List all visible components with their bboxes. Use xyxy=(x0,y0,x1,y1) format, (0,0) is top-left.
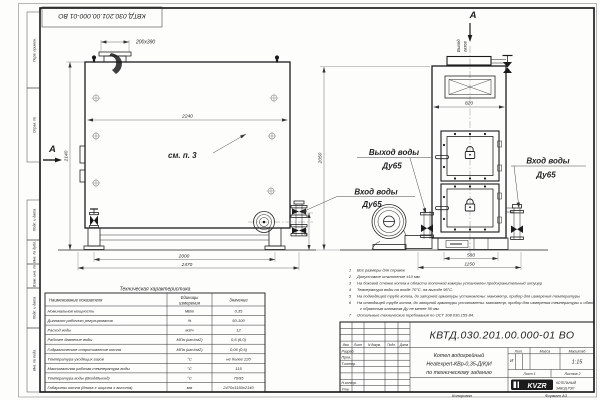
dim-height-2050: 2050 xyxy=(318,152,324,164)
row-unit: м3/ч xyxy=(185,328,193,333)
row-name: Диапазон рабочего регулирования xyxy=(47,318,114,323)
margin-label-0: Перв. примен. xyxy=(33,38,37,62)
tech-table-title: Техническая характеристика xyxy=(120,287,191,293)
upper-door xyxy=(436,131,502,181)
row-value: 0,6 (6,0) xyxy=(231,337,247,342)
note-num: 7 xyxy=(349,313,352,318)
note-num: 4 xyxy=(349,287,352,292)
row-value: 0,06 (0,6) xyxy=(230,347,248,352)
base-frame xyxy=(438,238,508,250)
row-unit: мм xyxy=(187,385,193,390)
tech-col3-header: Значение xyxy=(229,298,248,303)
drawing-canvas: Копировал Формат А3 Перв. примен. Справ.… xyxy=(0,0,600,400)
dim-width-820: 820 xyxy=(465,101,473,107)
role-razrab: Разраб. xyxy=(342,349,355,353)
row-value: 50-100 xyxy=(232,318,245,323)
row-name: Габариты котла (длина х ширина х высота) xyxy=(48,385,134,390)
row-value: не более 220 xyxy=(226,356,251,361)
row-unit: °С xyxy=(187,356,192,361)
vent-valve-icon xyxy=(503,56,513,74)
table-row: Рабочее давление воды МПа (кгс/см2) 0,6 … xyxy=(48,337,247,342)
dim-stub: 200х390 xyxy=(135,40,155,46)
row-value: 70/95 xyxy=(233,375,244,380)
role-utv: Утв. xyxy=(342,387,350,391)
dim-length-2470: 2470 xyxy=(181,262,193,268)
role-prov: Пров. xyxy=(342,356,351,360)
note-num: 2 xyxy=(348,274,352,279)
front-inlet-label: Вход воды Ду65 xyxy=(511,157,586,209)
side-inlet-label: Вход воды Ду65 xyxy=(301,188,415,213)
section-label-front: А xyxy=(469,10,477,21)
rev-header-izm: Изм. xyxy=(343,343,350,347)
section-label-side: А xyxy=(48,144,56,155)
support-foot xyxy=(88,228,100,246)
copied-label: Копировал xyxy=(452,393,473,398)
row-unit: МВт xyxy=(185,309,195,314)
row-unit: °С xyxy=(187,375,192,380)
margin-label-6: Инв. № подл. xyxy=(33,349,37,371)
row-name: Рабочее давление воды xyxy=(48,337,93,342)
margin-label-4: Взам. инв. № xyxy=(33,265,37,287)
note-text: На отводящей трубе котла, до запорной ар… xyxy=(357,300,595,305)
note-text: На подводящей трубе котла, до запорной а… xyxy=(357,294,580,299)
row-unit: МПа (кгс/см2) xyxy=(176,347,203,352)
company-line2: ЗАВОД РЭП xyxy=(556,386,575,390)
side-inlet-line1: Вход воды xyxy=(354,188,397,197)
row-value: 12 xyxy=(236,328,241,333)
doc-number: КВТД.030.201.00.000-01 ВО xyxy=(429,330,574,342)
row-unit: °С xyxy=(187,366,192,371)
lower-door xyxy=(436,184,502,232)
margin-stamp-column: Перв. примен. Справ. № Подп. и дата Инв.… xyxy=(27,12,40,392)
table-row: Температура воды (Вход/Выход) °С 70/95 xyxy=(48,375,245,380)
item-name-line1: Котел водогрейный xyxy=(434,352,484,359)
scale-value: 1:15 xyxy=(572,360,584,366)
title-block: КВТД.030.201.00.000-01 ВО Изм. Лист N до… xyxy=(340,322,594,392)
notes-list: 1 Все размеры для справок 2 Допустимое о… xyxy=(348,268,595,318)
margin-label-2: Подп. и дата xyxy=(33,209,37,232)
gas-out-line2: газов xyxy=(463,41,468,52)
boiler-body-side xyxy=(85,62,290,228)
door-handle xyxy=(436,207,449,210)
table-row: Расход воды м3/ч 12 xyxy=(48,328,242,333)
note-text-cont: с обратным клапаном Ду не менее 50 мм. xyxy=(360,306,440,311)
front-inlet-line2: Ду65 xyxy=(535,171,556,180)
row-name: Расход воды xyxy=(48,328,72,333)
note-num: 1 xyxy=(349,268,351,273)
note-num: 5 xyxy=(349,294,352,299)
drain-valve-icon xyxy=(90,209,99,228)
role-nkontr: Н.контр. xyxy=(342,381,357,385)
row-name: Гидравлическое сопротивление котла xyxy=(48,347,122,352)
tech-col1-header: Наименование показателя xyxy=(49,298,103,303)
lit-header: Лит. xyxy=(514,350,523,354)
margin-label-5: Подп. и дата xyxy=(33,297,37,320)
note-text: Температура воды на входе 70°С, на выход… xyxy=(357,287,453,292)
tech-col2-header-2: измерения xyxy=(179,301,201,306)
format-label: Формат А3 xyxy=(545,393,568,398)
side-fitting xyxy=(80,146,85,163)
dim-overall-1150: 1150 xyxy=(464,262,475,268)
table-row: Максимальная рабочая температура воды °С… xyxy=(48,366,243,371)
water-inlet-pipe-icon xyxy=(506,205,524,241)
rev-header-list: Лист xyxy=(353,343,363,347)
row-unit: МПа (кгс/см2) xyxy=(176,337,203,342)
section-arrow: А xyxy=(43,144,62,162)
explosion-hatch xyxy=(445,76,495,98)
front-outlet-line2: Ду65 xyxy=(381,162,402,171)
rev-header-sign: Подп. xyxy=(387,343,396,347)
table-row: Габариты котла (длина х ширина х высота)… xyxy=(48,385,255,390)
sheets-total: Листов 2 xyxy=(563,372,580,376)
rev-header-date: Дата xyxy=(399,343,409,347)
chimney-flange xyxy=(447,57,491,66)
sheet-number: Лист 1 xyxy=(522,372,535,376)
boiler-side-view: 200х390 2240 см. п. 3 А 2140 xyxy=(43,40,415,271)
row-unit: % xyxy=(188,318,192,323)
row-value: 0,35 xyxy=(235,309,244,314)
gas-out-line1: Выход xyxy=(456,39,461,52)
note-num: 6 xyxy=(349,300,352,305)
note-num: 3 xyxy=(349,281,352,286)
table-row: Номинальная мощность МВт 0,35 xyxy=(48,309,244,314)
logo-text: KVZR xyxy=(527,383,546,390)
top-stamp-number: КВТД.030.201.00.000-01 ВО xyxy=(58,12,146,19)
dim-valve-255: 255 xyxy=(303,228,308,236)
dim-feet-2000: 2000 xyxy=(178,254,190,260)
row-name: Температура уходящих газов xyxy=(48,356,104,361)
item-name-line2: Heatexpert-КВр-0,35-Д(К)И xyxy=(426,362,491,368)
table-row: Гидравлическое сопротивление котла МПа (… xyxy=(48,347,248,352)
top-stamp: КВТД.030.201.00.000-01 ВО xyxy=(42,7,162,27)
door-handle xyxy=(436,156,449,159)
dim-height-2140: 2140 xyxy=(64,150,70,162)
side-fitting xyxy=(80,170,85,182)
row-value: 115 xyxy=(235,366,242,371)
rev-header-doc: N докум. xyxy=(368,343,381,347)
role-tkontr: Т.контр. xyxy=(342,362,357,366)
tech-col2-header-1: Единицы xyxy=(181,295,199,300)
front-inlet-line1: Вход воды xyxy=(526,157,569,166)
mass-header: Масса xyxy=(540,350,551,354)
scale-header: Масштаб xyxy=(569,350,587,354)
table-row: Температура уходящих газов °С не более 2… xyxy=(48,356,252,361)
item-name-line3: по техническому заданию xyxy=(426,370,491,376)
front-outlet-line1: Выход воды xyxy=(369,148,419,157)
note-text: Все размеры для справок xyxy=(357,268,406,273)
company-line1: КОТЕЛЬНЫЙ xyxy=(556,381,577,385)
row-name: Максимальная рабочая температура воды xyxy=(48,366,130,371)
margin-label-1: Справ. № xyxy=(33,117,37,133)
lit-value: И xyxy=(510,358,514,363)
dim-width-2240: 2240 xyxy=(181,114,193,120)
boiler-front-view: А Выход газов 820 xyxy=(316,10,586,270)
support-foot xyxy=(269,228,281,246)
row-name: Номинальная мощность xyxy=(48,309,95,314)
note-text: Остальные технические требования по ОСТ … xyxy=(357,313,474,318)
row-name: Температура воды (Вход/Выход) xyxy=(48,375,111,380)
note-text: Допустимое отклонение ±10 мм. xyxy=(356,274,421,279)
company-logo: KVZR КОТЕЛЬНЫЙ ЗАВОД РЭП xyxy=(511,380,577,391)
note-text: На боковой стенке котла в области топочн… xyxy=(357,281,543,286)
row-value: 2470х1150х2140 xyxy=(222,385,254,390)
gas-outlet-stub xyxy=(99,52,131,74)
margin-label-3: Инв. № дубл. xyxy=(33,241,37,263)
drawing-sheet: Копировал Формат А3 Перв. примен. Справ.… xyxy=(0,0,600,400)
dim-base-580: 580 xyxy=(467,253,475,259)
technical-table: Техническая характеристика Наименование … xyxy=(45,287,265,393)
callout-see-p3: см. п. 3 xyxy=(168,151,197,160)
table-row: Диапазон рабочего регулирования % 50-100 xyxy=(47,318,246,323)
hatch-mark-icons xyxy=(92,94,279,196)
